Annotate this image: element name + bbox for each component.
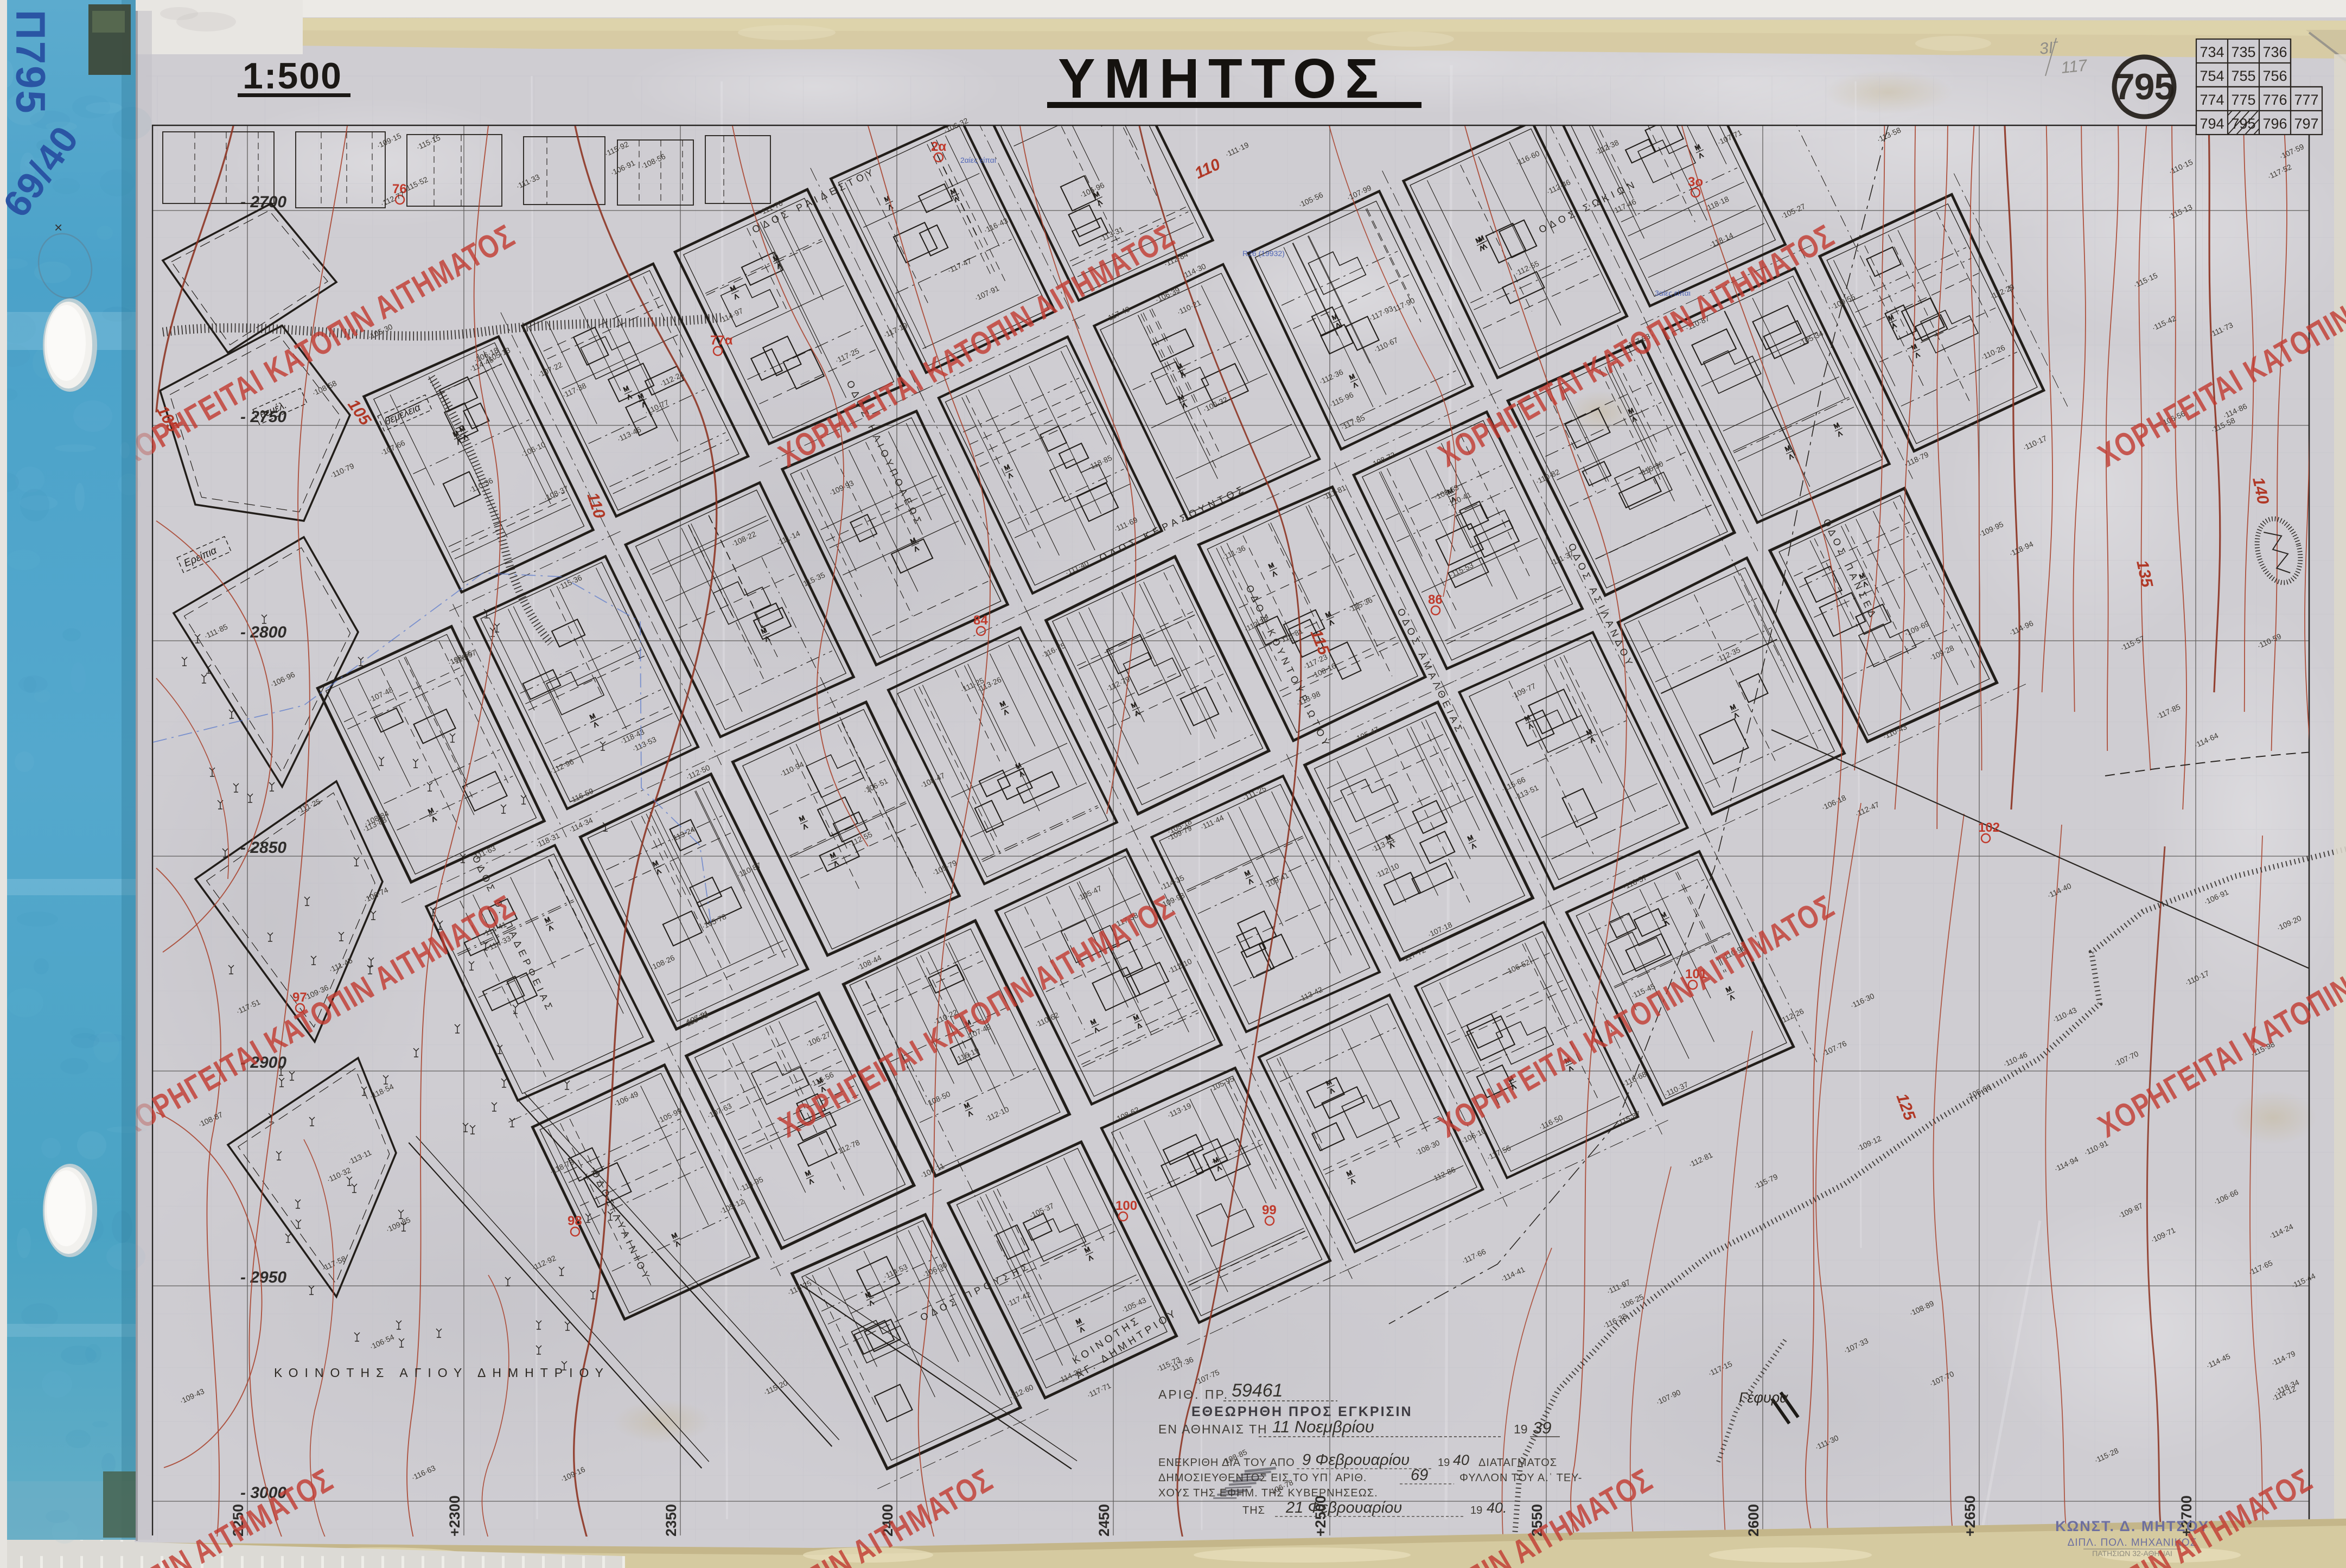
svg-text:ΑΡΙΘ. ΠΡ.: ΑΡΙΘ. ΠΡ. (1158, 1387, 1229, 1401)
svg-text:776: 776 (2262, 92, 2287, 108)
svg-text:ΔΗΜΟΣΙΕΥΘΕΝΤΟΣ ΕΙΣ ΤΟ ΥΠˈ ΑΡΙΘ: ΔΗΜΟΣΙΕΥΘΕΝΤΟΣ ΕΙΣ ΤΟ ΥΠˈ ΑΡΙΘ. (1158, 1472, 1367, 1484)
svg-text:2450: 2450 (1096, 1504, 1112, 1537)
svg-text:40.: 40. (1487, 1500, 1507, 1516)
svg-text:796: 796 (2262, 116, 2287, 132)
svg-text:19: 19 (1514, 1422, 1528, 1436)
svg-text:11 Νοεμβρίου: 11 Νοεμβρίου (1272, 1417, 1374, 1436)
svg-text:- 2950: - 2950 (240, 1269, 286, 1286)
svg-text:39: 39 (1533, 1418, 1551, 1437)
svg-text:ΚΟΙΝΟΤΗΣ ΑΓΙΟΥ ΔΗΜΗΤΡΙΟΥ: ΚΟΙΝΟΤΗΣ ΑΓΙΟΥ ΔΗΜΗΤΡΙΟΥ (274, 1366, 610, 1380)
svg-text:2600: 2600 (1745, 1504, 1762, 1537)
svg-text:3ο: 3ο (1688, 175, 1703, 189)
svg-text:734: 734 (2200, 44, 2224, 60)
svg-text:2350: 2350 (663, 1504, 679, 1537)
svg-text:ΤΗΣ: ΤΗΣ (1242, 1505, 1265, 1516)
svg-text:+2300: +2300 (447, 1495, 463, 1537)
svg-text:756: 756 (2262, 68, 2287, 84)
svg-text:3Ιˉ: 3Ιˉ (2038, 38, 2060, 58)
svg-text:59461: 59461 (1232, 1380, 1283, 1401)
svg-text:40: 40 (1453, 1452, 1469, 1468)
svg-text:2α: 2α (931, 139, 946, 154)
svg-text:777: 777 (2294, 92, 2318, 108)
svg-text:ΧΟΥΣ ΤΗΣ ΕΦΗΜ. ΤΗΣ ΚΥΒΕΡΝΗΣΕΩΣ: ΧΟΥΣ ΤΗΣ ΕΦΗΜ. ΤΗΣ ΚΥΒΕΡΝΗΣΕΩΣ. (1158, 1487, 1378, 1499)
svg-text:ΔΙΑΤΑΓΜΑΤΟΣ: ΔΙΑΤΑΓΜΑΤΟΣ (1478, 1457, 1557, 1469)
svg-text:R26 (19932): R26 (19932) (1242, 249, 1285, 258)
svg-text:99: 99 (1262, 1203, 1277, 1218)
svg-text:795: 795 (2114, 66, 2174, 107)
svg-text:19: 19 (1470, 1505, 1482, 1516)
svg-text:- 2800: - 2800 (240, 623, 286, 641)
svg-text:797: 797 (2294, 116, 2318, 132)
svg-text:ΕΝ ΑΘΗΝΑΙΣ ΤΗ: ΕΝ ΑΘΗΝΑΙΣ ΤΗ (1158, 1422, 1268, 1436)
svg-text:84: 84 (973, 613, 988, 628)
svg-text:ΦΥΛΛΟΝ ΤΟΥ Α.ˈ ΤΕΥ-: ΦΥΛΛΟΝ ΤΟΥ Α.ˈ ΤΕΥ- (1459, 1472, 1582, 1484)
svg-text:ΥΜΗΤΤΟΣ: ΥΜΗΤΤΟΣ (1058, 47, 1387, 110)
svg-text:774: 774 (2200, 92, 2224, 108)
svg-text:100: 100 (1115, 1199, 1137, 1213)
svg-text:1:500: 1:500 (243, 55, 342, 97)
svg-text:2αίες είπαι: 2αίες είπαι (960, 156, 996, 164)
svg-text:Γέφυρα: Γέφυρα (1739, 1389, 1789, 1406)
svg-text:754: 754 (2200, 68, 2224, 84)
svg-text:735: 735 (2231, 44, 2255, 60)
svg-text:19: 19 (1438, 1457, 1450, 1469)
svg-text:×: × (54, 219, 62, 235)
svg-text:21 Φεβρουαρίου: 21 Φεβρουαρίου (1285, 1499, 1402, 1516)
svg-text:98: 98 (568, 1214, 582, 1228)
svg-text:794: 794 (2200, 116, 2224, 132)
svg-text:775: 775 (2231, 92, 2255, 108)
svg-text:69: 69 (1411, 1467, 1428, 1484)
svg-text:+2650: +2650 (1962, 1495, 1978, 1537)
svg-text:77α: 77α (710, 333, 733, 348)
svg-text:9 Φεβρουαρίου: 9 Φεβρουαρίου (1302, 1451, 1410, 1469)
svg-text:117: 117 (2060, 56, 2088, 77)
svg-text:86: 86 (1428, 592, 1443, 607)
svg-text:102: 102 (1978, 820, 2000, 835)
svg-text:755: 755 (2231, 68, 2255, 84)
svg-text:Π795: Π795 (7, 10, 53, 115)
svg-text:736: 736 (2262, 44, 2287, 60)
